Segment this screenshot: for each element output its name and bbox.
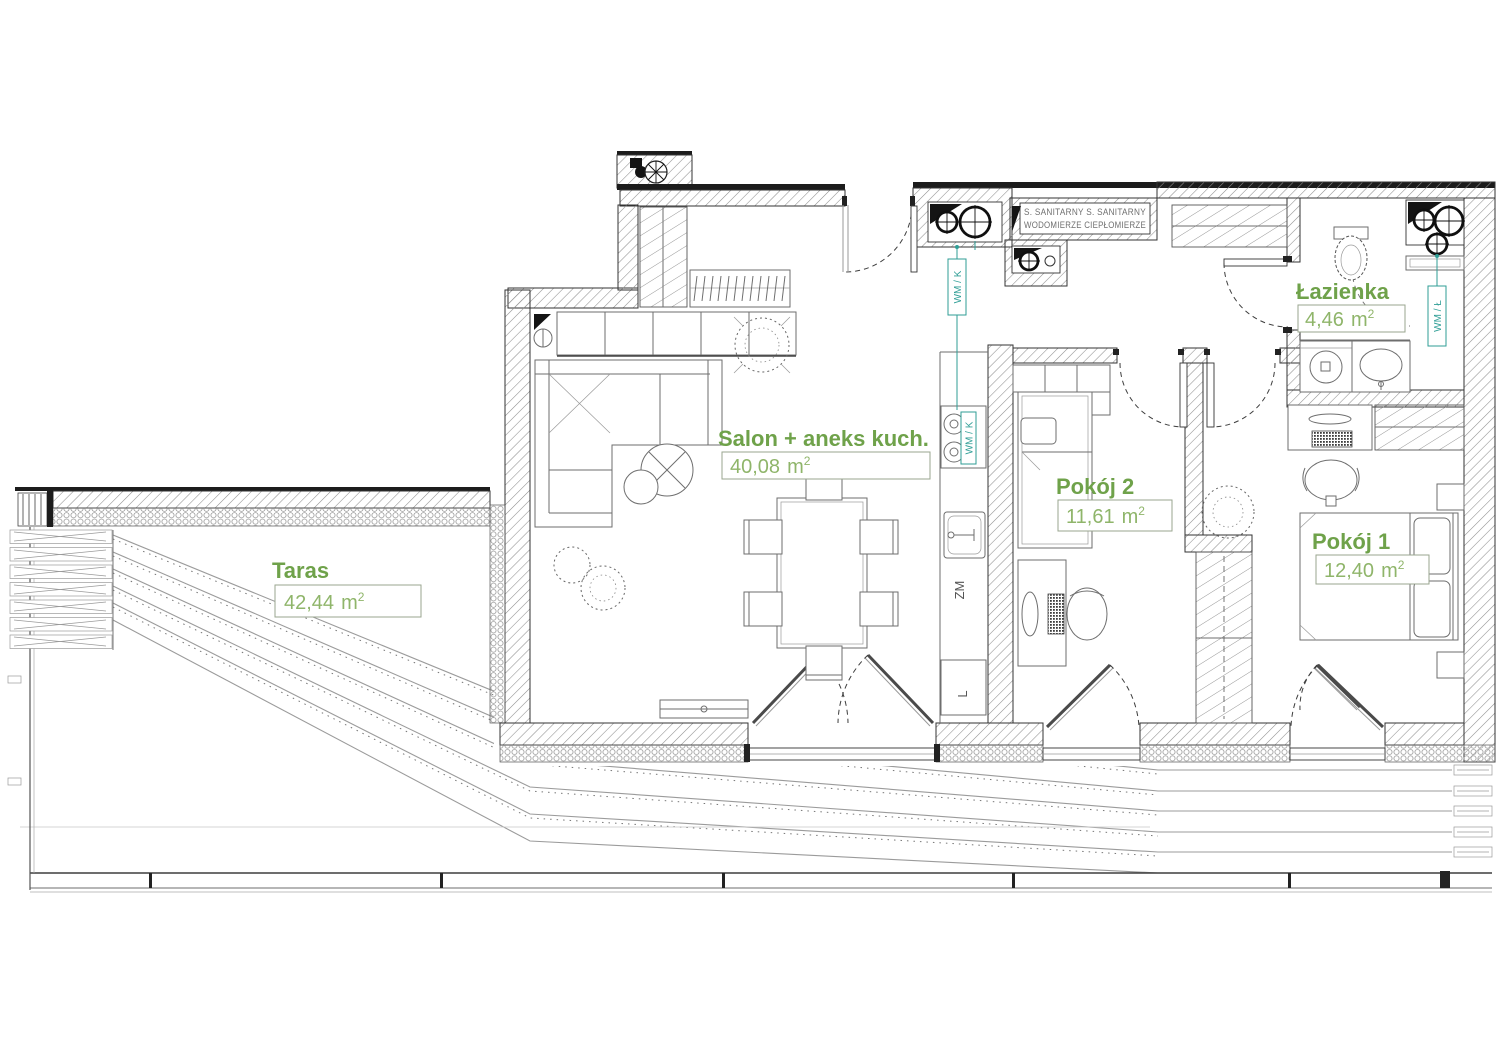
dining-chair — [744, 520, 782, 554]
floor-plan-canvas: S. SANITARNY S. SANITARNY WODOMIERZE CIE… — [0, 0, 1500, 1050]
dining-chair — [860, 592, 898, 626]
room-name: Pokój 1 — [1312, 529, 1390, 554]
kitchen-counter: L ZM — [940, 352, 988, 723]
water-meter-kitchen-label: WM / K — [948, 259, 966, 315]
fridge: L — [941, 660, 986, 715]
floor-plan-page: S. SANITARNY S. SANITARNY WODOMIERZE CIE… — [0, 0, 1500, 1050]
terrace-wall-end — [18, 490, 53, 527]
room-name: Pokój 2 — [1056, 474, 1134, 499]
pillow — [1021, 418, 1056, 444]
wall-trim — [911, 206, 917, 272]
shaft-label-line1: S. SANITARNY S. SANITARNY — [1024, 207, 1146, 217]
shaft-label-line2: WODOMIERZE CIEPŁOMIERZE — [1024, 220, 1146, 230]
room-area: 11,61m2 — [1066, 504, 1145, 528]
kitchen-sink — [944, 512, 985, 558]
desk-chair — [1305, 460, 1357, 500]
washing-machine — [1300, 341, 1352, 392]
desk-chair — [1067, 588, 1107, 640]
bathroom-sink — [1352, 341, 1410, 392]
room-area: 4,46m2 — [1305, 307, 1375, 331]
sideboard — [557, 312, 796, 356]
toilet — [1334, 227, 1368, 280]
laptop — [1312, 431, 1352, 447]
water-meter-bathroom-label: WM / Ł — [1428, 286, 1446, 346]
room-name: Salon + aneks kuch. — [718, 426, 929, 451]
room-area: 42,44m2 — [284, 590, 365, 614]
svg-text:WM / K: WM / K — [965, 421, 976, 454]
svg-text:WM / Ł: WM / Ł — [1433, 300, 1444, 332]
sanitary-shaft: S. SANITARNY S. SANITARNY WODOMIERZE CIE… — [1012, 203, 1150, 234]
terrace-wall — [15, 487, 490, 527]
pillow — [1414, 581, 1450, 637]
room-area: 12,40m2 — [1324, 558, 1405, 582]
dining-table — [777, 498, 867, 648]
room-area: 40,08m2 — [730, 454, 811, 478]
room-name: Łazienka — [1296, 279, 1390, 304]
laptop — [1048, 594, 1064, 634]
water-meter-kitchen-tap-label: WM / K — [961, 412, 976, 464]
kitchen-water-meter-niche — [928, 202, 1002, 242]
dining-chair — [806, 646, 842, 680]
nightstand — [1437, 484, 1464, 510]
tv-bench — [660, 700, 748, 718]
fridge-label: L — [955, 690, 970, 697]
dining-chair — [860, 520, 898, 554]
nightstand — [1437, 652, 1464, 678]
dining-chair — [744, 592, 782, 626]
towel-radiator — [1406, 256, 1464, 270]
room-name: Taras — [272, 558, 329, 583]
desk-lamp — [1309, 414, 1351, 424]
room-label-lazienka: Łazienka 4,46m2 — [1296, 279, 1405, 332]
second-meter-niche — [1012, 246, 1060, 273]
svg-text:WM / K: WM / K — [953, 270, 964, 303]
room-label-salon: Salon + aneks kuch. 40,08m2 — [718, 426, 930, 479]
dishwasher-label: ZM — [952, 581, 967, 600]
